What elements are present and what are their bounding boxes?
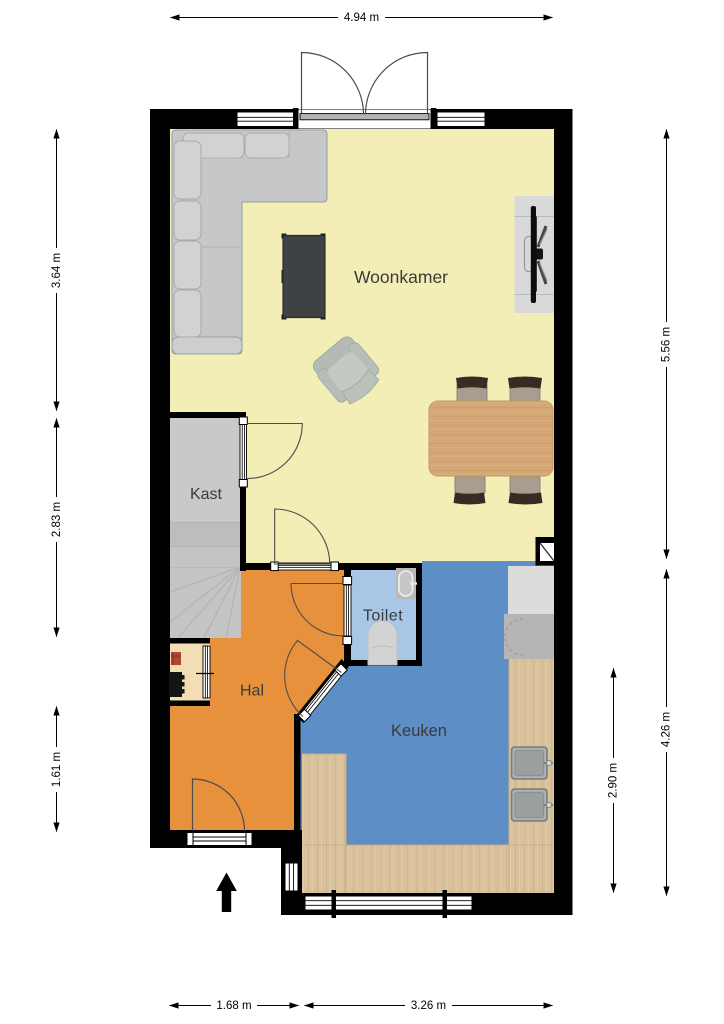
svg-text:1.68 m: 1.68 m (216, 1000, 251, 1012)
svg-text:2.90 m: 2.90 m (608, 763, 620, 798)
svg-text:Kast: Kast (190, 486, 223, 503)
svg-text:4.26 m: 4.26 m (661, 712, 673, 747)
svg-text:2.83 m: 2.83 m (51, 502, 63, 537)
svg-text:3.64 m: 3.64 m (51, 253, 63, 288)
svg-text:Toilet: Toilet (363, 608, 403, 625)
svg-text:5.56 m: 5.56 m (661, 327, 673, 362)
svg-text:3.26 m: 3.26 m (411, 1000, 446, 1012)
svg-text:Hal: Hal (240, 683, 264, 700)
svg-text:Keuken: Keuken (391, 722, 447, 740)
svg-text:4.94 m: 4.94 m (344, 12, 379, 24)
svg-text:1.61 m: 1.61 m (51, 752, 63, 787)
svg-text:Woonkamer: Woonkamer (354, 267, 448, 287)
